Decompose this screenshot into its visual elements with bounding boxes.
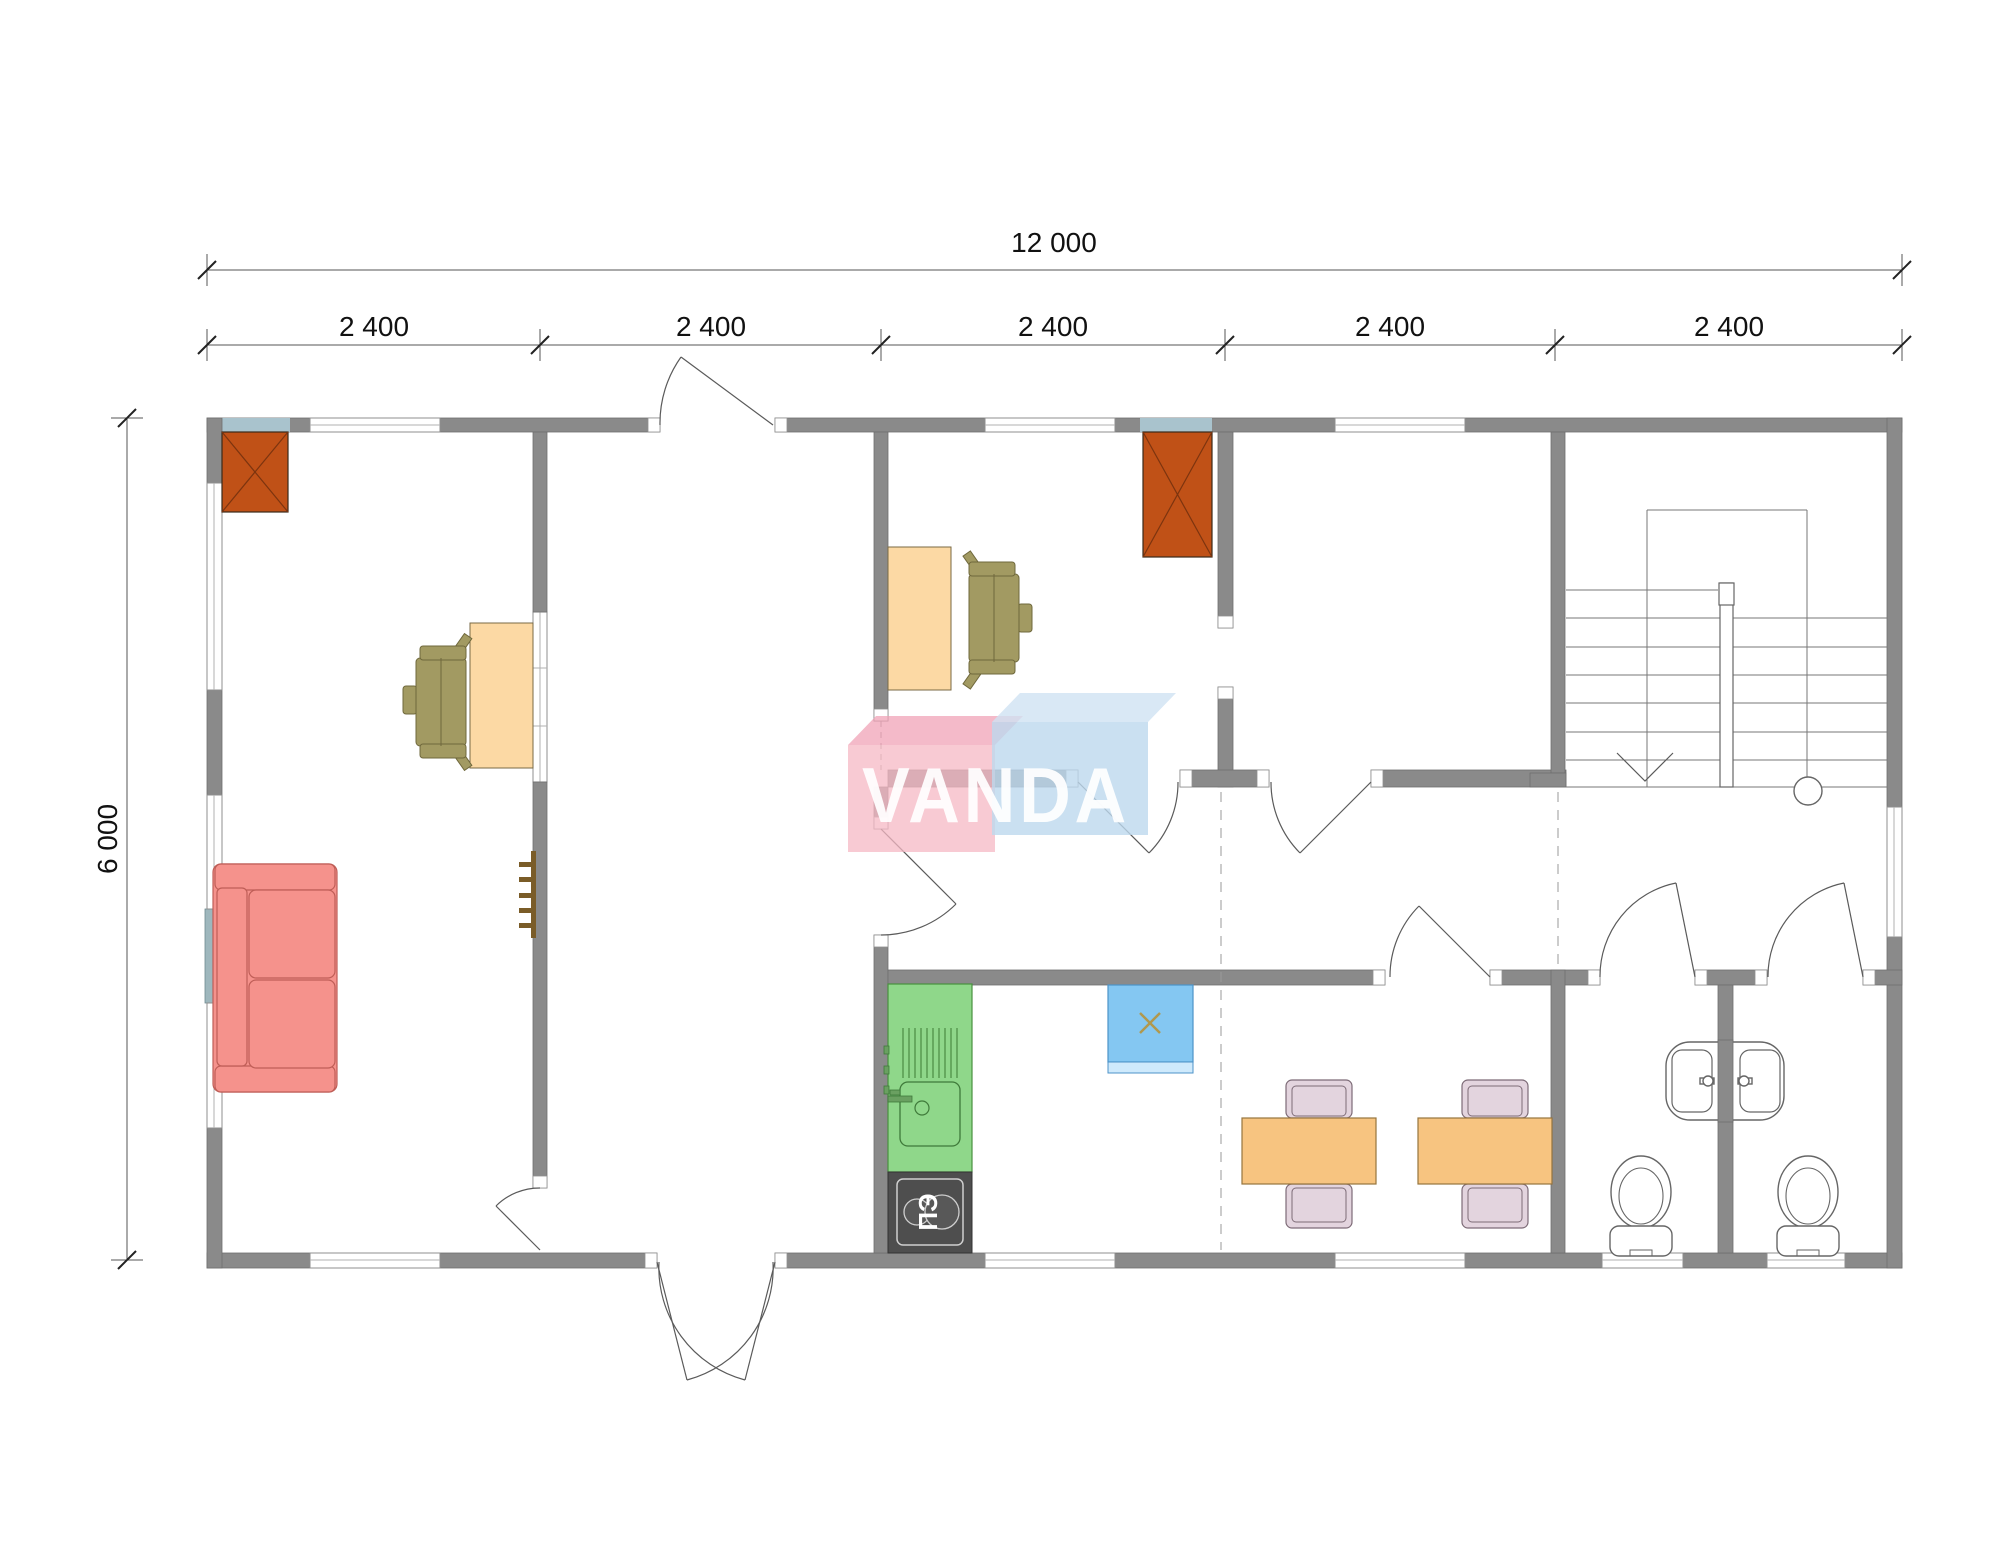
chimney-block-left (222, 432, 288, 512)
dining-chair (1462, 1184, 1528, 1228)
dining-area (1108, 985, 1552, 1228)
watermark-logo: VANDA (848, 693, 1176, 852)
sofa-cushion (249, 890, 335, 978)
floor-plan-canvas: 12 000 2 400 2 400 2 400 2 400 2 400 6 0… (0, 0, 2000, 1563)
dining-set-1 (1242, 1080, 1376, 1228)
segment-label-3: 2 400 (1018, 311, 1088, 342)
water-heater (1108, 985, 1193, 1073)
wall-tint-right (1140, 418, 1212, 432)
electric-stove: ПЭ (888, 1172, 972, 1253)
total-height-label: 6 000 (92, 804, 123, 874)
door-hall-left-office (496, 1188, 540, 1250)
sofa-cushion (249, 980, 335, 1068)
door-dining-corridor (1390, 906, 1490, 977)
floor-plan-drawing: 12 000 2 400 2 400 2 400 2 400 2 400 6 0… (0, 0, 2000, 1563)
toilet-2 (1777, 1156, 1839, 1256)
segment-label-4: 2 400 (1355, 311, 1425, 342)
stair-rail (1720, 583, 1733, 787)
staircase (1566, 510, 1887, 805)
stove-label: ПЭ (913, 1193, 943, 1230)
dining-chair (1286, 1184, 1352, 1228)
dining-table (1242, 1118, 1376, 1184)
sofa (213, 864, 337, 1092)
chair-middle-office (963, 551, 1032, 689)
watermark-blue-top (992, 693, 1176, 722)
segment-label-1: 2 400 (339, 311, 409, 342)
kitchen-unit: ПЭ (884, 984, 972, 1253)
entry-door-top (660, 357, 773, 425)
total-width-label: 12 000 (1011, 227, 1097, 258)
door-wc-1 (1600, 883, 1695, 977)
door-office3-corridor (1271, 782, 1371, 853)
dining-set-2 (1418, 1080, 1552, 1228)
door-wc-2 (1768, 883, 1863, 977)
middle-office (888, 432, 1212, 690)
dining-table (1418, 1118, 1552, 1184)
stair-newel-post (1794, 777, 1822, 805)
interior-walls (533, 418, 1902, 1268)
chimney-block-right (1143, 432, 1212, 557)
windows (207, 418, 1902, 1268)
watermark-text: VANDA (862, 751, 1130, 839)
segment-label-5: 2 400 (1694, 311, 1764, 342)
stair-rail-cap (1719, 583, 1734, 605)
segment-label-2: 2 400 (676, 311, 746, 342)
chair-left-office (403, 634, 472, 771)
stair-down-arrow (1617, 753, 1673, 781)
left-office (213, 432, 536, 1092)
entry-door-bottom (657, 1262, 775, 1380)
wall-tint-left (222, 418, 290, 432)
desk-left-office (470, 623, 533, 768)
coat-rack (519, 851, 536, 938)
kitchen-counter (888, 984, 972, 1172)
desk-middle-office (888, 547, 951, 690)
toilet-1 (1610, 1156, 1672, 1256)
